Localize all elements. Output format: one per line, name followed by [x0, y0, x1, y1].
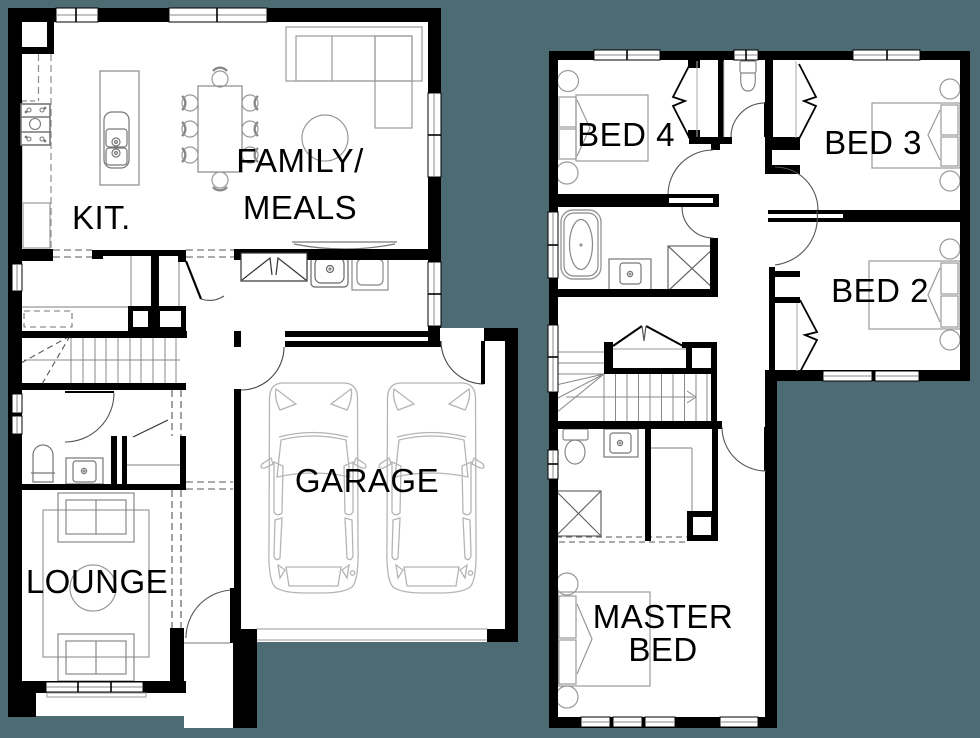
svg-text:GARAGE: GARAGE — [295, 462, 439, 499]
svg-text:BED 3: BED 3 — [824, 124, 922, 161]
svg-text:LOUNGE: LOUNGE — [26, 563, 168, 600]
svg-text:BED 2: BED 2 — [831, 272, 929, 309]
svg-text:MASTER: MASTER — [593, 598, 734, 635]
svg-text:MEALS: MEALS — [243, 189, 357, 226]
svg-text:FAMILY/: FAMILY/ — [236, 142, 364, 179]
svg-text:BED: BED — [628, 631, 697, 668]
svg-text:KIT.: KIT. — [72, 199, 131, 236]
svg-text:BED 4: BED 4 — [577, 116, 675, 153]
